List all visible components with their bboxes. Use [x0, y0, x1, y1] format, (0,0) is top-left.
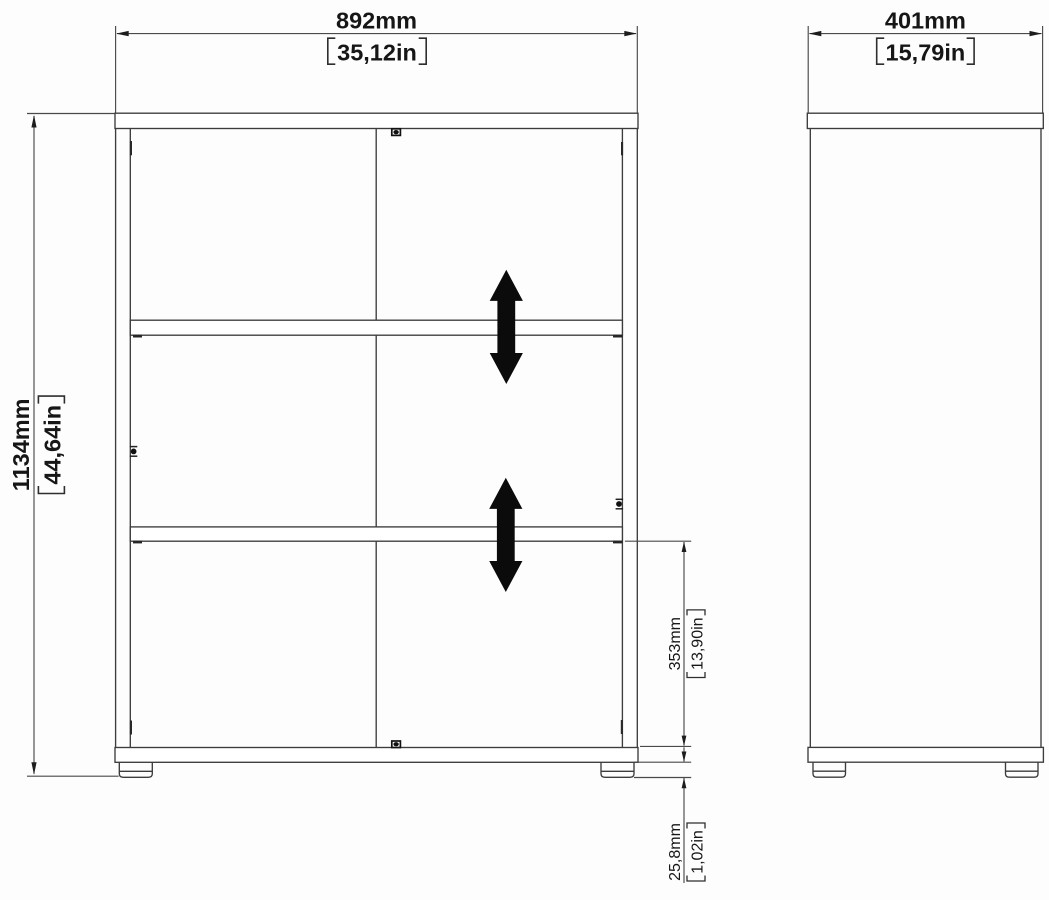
- svg-text:25,8mm: 25,8mm: [667, 823, 684, 881]
- svg-text:35,12in: 35,12in: [337, 39, 417, 65]
- svg-text:44,64in: 44,64in: [40, 405, 66, 485]
- svg-text:892mm: 892mm: [336, 8, 417, 34]
- svg-text:13,90in: 13,90in: [690, 617, 707, 670]
- svg-text:15,79in: 15,79in: [886, 39, 966, 65]
- svg-text:1,02in: 1,02in: [690, 830, 707, 874]
- svg-text:1134mm: 1134mm: [8, 398, 34, 491]
- svg-text:401mm: 401mm: [885, 8, 966, 34]
- svg-text:353mm: 353mm: [667, 617, 684, 670]
